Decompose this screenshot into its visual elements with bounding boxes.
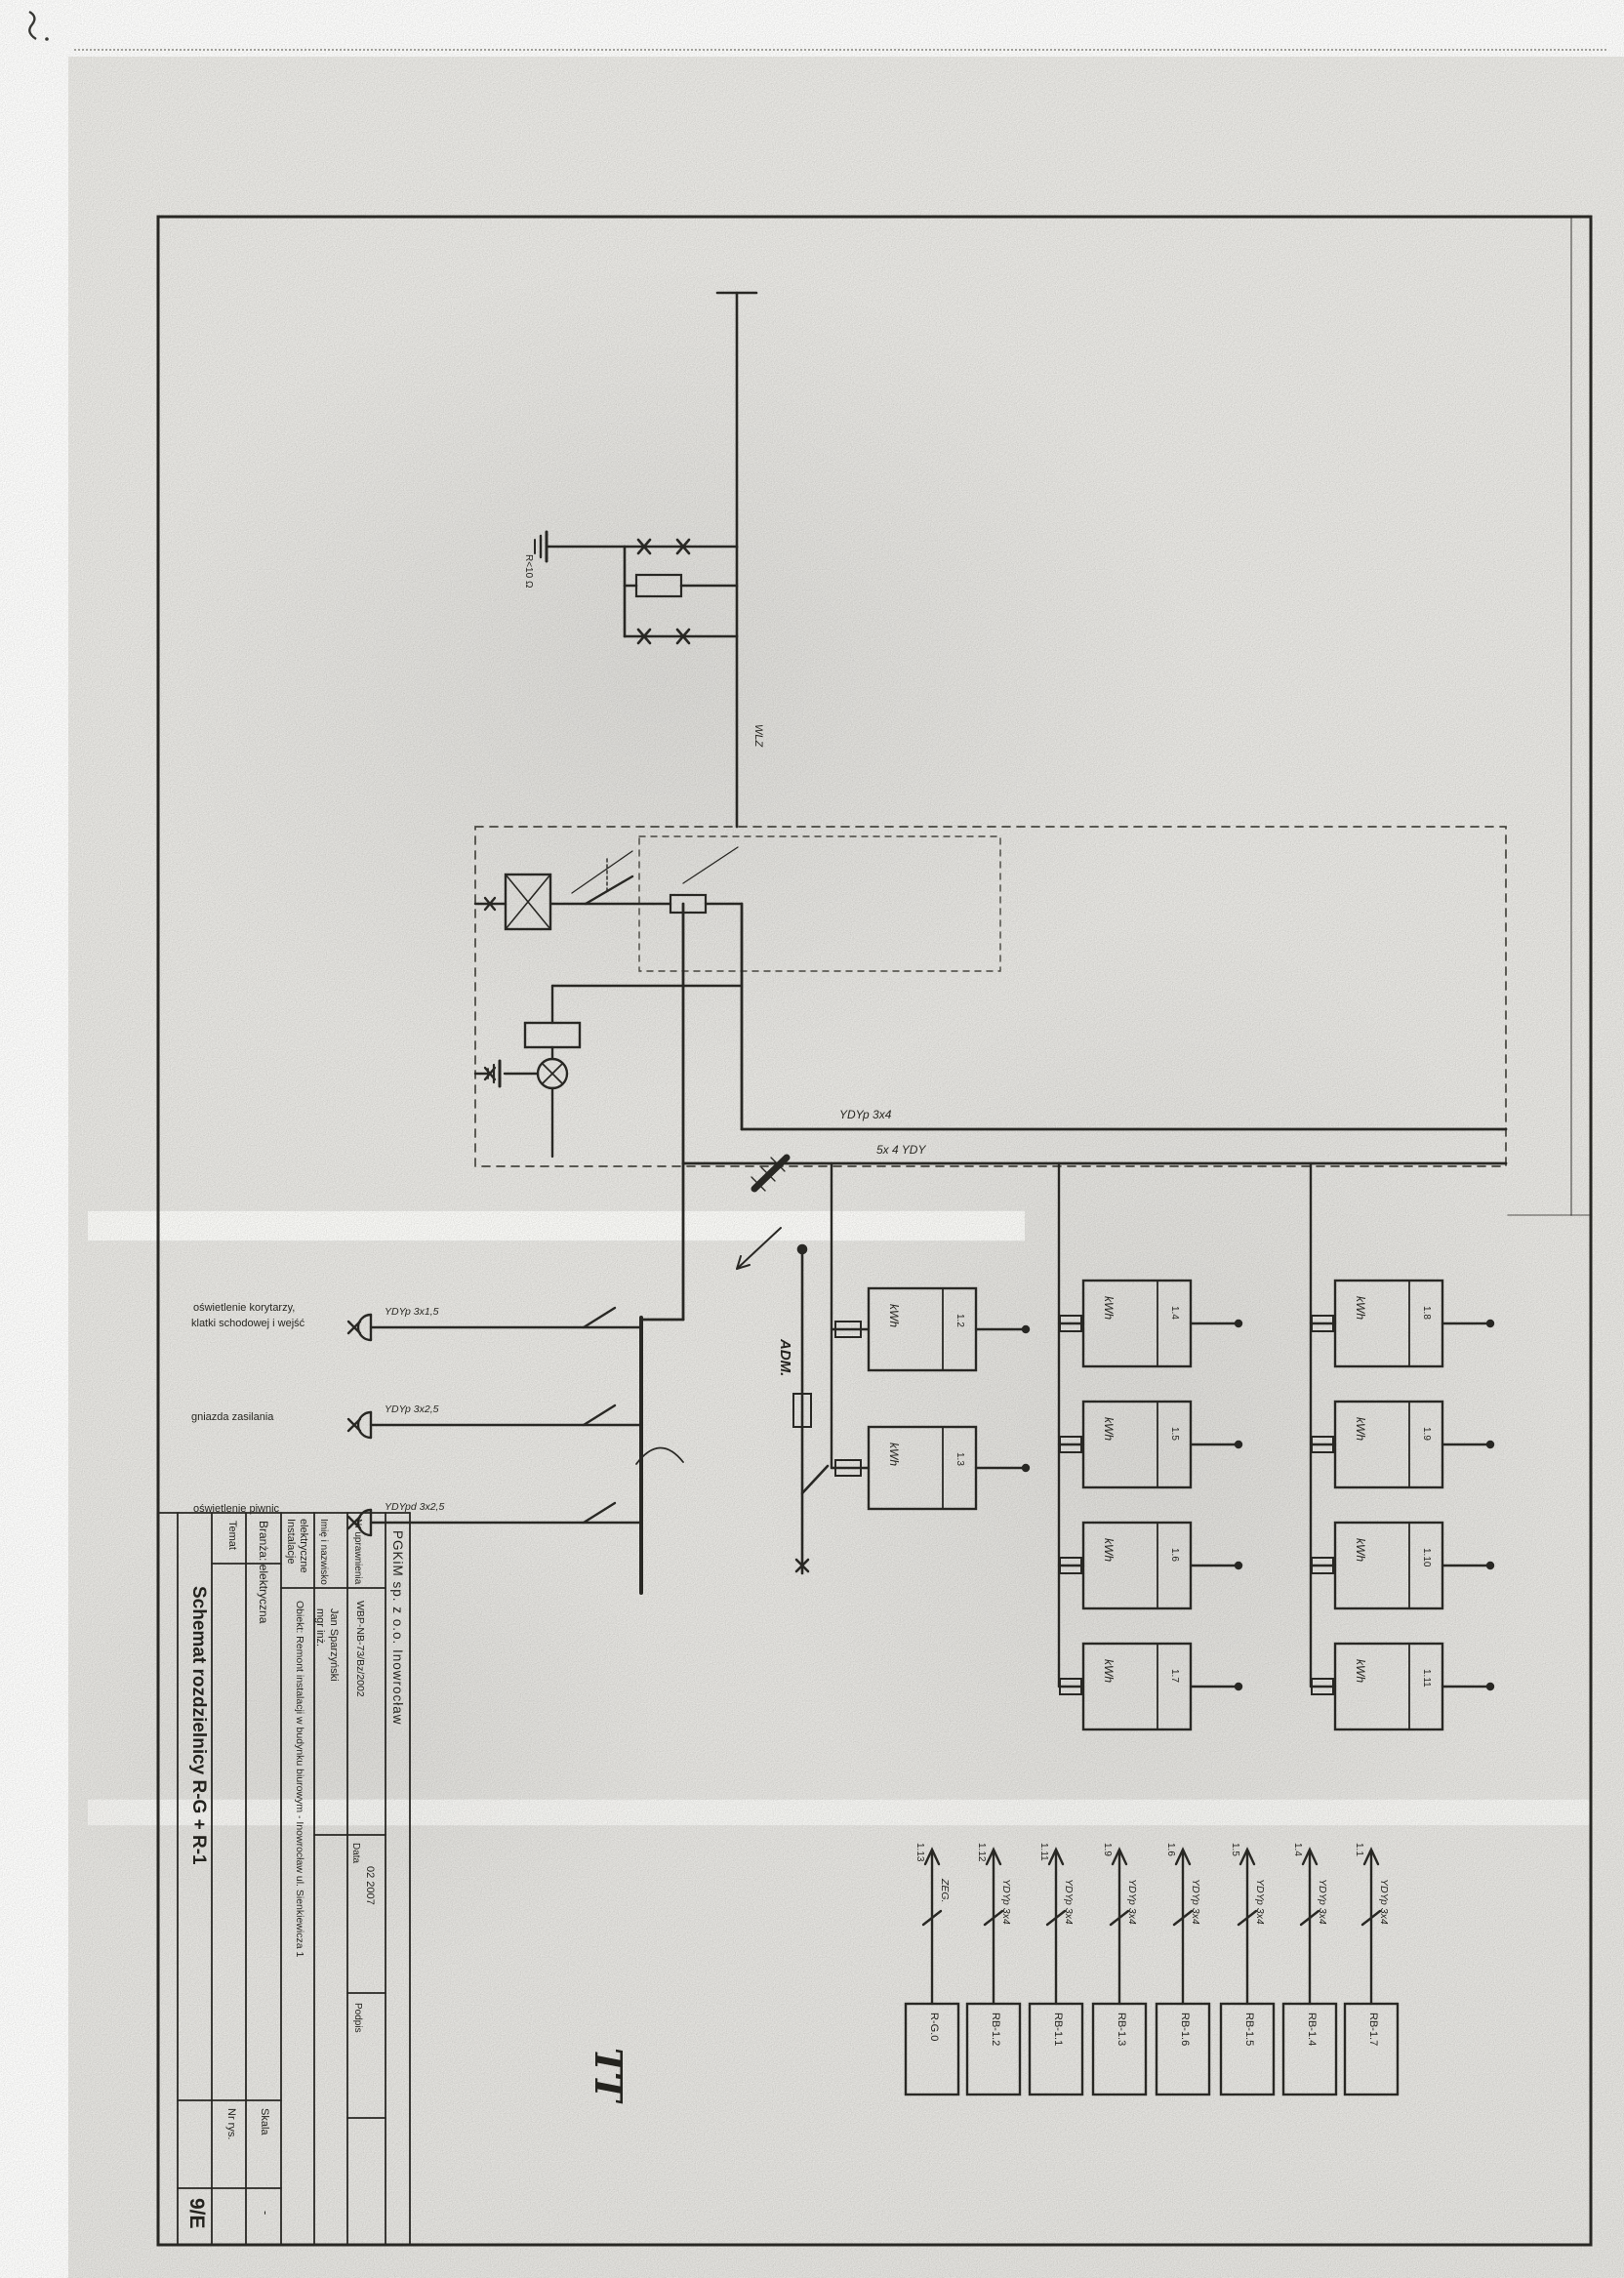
feeder-board-label: RB-1.5 [1243,2013,1254,2046]
meter-circuit-number: 1.9 [1421,1427,1431,1441]
ground-resistance-label: R<10 Ω [523,554,533,588]
feeder-cable: YDYp 3x4 [1255,1879,1266,1925]
feeder-cable: YDYp 3x4 [1064,1879,1075,1925]
circuit-annotation: oświetlenie piwnic [193,1503,279,1516]
meter-circuit-number: 1.3 [954,1452,964,1466]
meter-circuit-number: 1.8 [1421,1306,1431,1320]
meter-circuit-number: 1.10 [1421,1548,1431,1566]
skala-label: Skala [259,2108,269,2136]
supply-circuit [535,293,756,827]
wlz-label: WLZ [752,724,763,747]
main-switch-group [475,847,742,929]
temat-label: Temat [226,1521,237,1550]
circuit-annotation: gniazda zasilania [191,1411,273,1424]
cable-runs [641,904,1506,1320]
feeder-board-label: RB-1.4 [1306,2013,1317,2046]
upr-value: WBP-NB-73/Bz/2002 [355,1601,366,1697]
circuit-annotation: klatki schodowej i wejść [191,1318,304,1330]
data-value: 02 2007 [364,1866,375,1905]
kwh-meter-label: kWh [1355,1296,1366,1320]
imie-label: Imię i nazwisko [318,1519,328,1585]
feeder-number: 1.6 [1165,1843,1175,1856]
kwh-meter-label: kWh [1355,1538,1366,1562]
adm-label: ADM. [778,1339,792,1376]
upr-label: Nr uprawnienia [352,1519,362,1584]
ground-symbol [535,532,625,561]
kwh-meter-label: kWh [1103,1296,1115,1320]
scanned-schematic-page: R<10 Ω WLZ YDYp 3x4 5x 4 YDY oświetlenie… [0,0,1624,2278]
company-name: PGKiM sp. z o.o. Inowrocław [391,1530,405,1726]
nr-rys-label: Nr rys. [225,2108,236,2139]
sheet-border [158,217,1591,2245]
sheet-number: 9/E [186,2198,207,2229]
podpis-label: Podpis [352,2003,362,2033]
instalacje-cell: Instalacje [285,1519,296,1564]
circuit-cable-label: YDYp 3x1,5 [385,1306,438,1318]
designer-name: mgr inż. [314,1608,325,1647]
feeder-number: 1.12 [976,1843,986,1861]
schematic-linework [0,0,1624,2278]
feeder-number: 1.4 [1292,1843,1302,1856]
meter-circuit-number: 1.11 [1421,1669,1431,1688]
lamp-arrester-group [475,986,742,1157]
feeder-number: 1.9 [1102,1843,1112,1856]
meter-feeds [832,1163,1311,1687]
feeder-cable: YDYp 3x4 [1191,1879,1201,1925]
feeder-board-label: RB-1.7 [1367,2013,1378,2046]
circuit-cable-label: YDYp 3x2,5 [385,1403,438,1415]
meter-circuit-number: 1.5 [1169,1427,1179,1441]
kwh-meter-label: kWh [1103,1538,1115,1562]
kwh-meters-col3 [1311,1281,1493,1729]
kwh-meter-label: kWh [1355,1659,1366,1683]
kwh-meter-label: kWh [1103,1417,1115,1441]
feeder-number: 1.11 [1038,1843,1048,1861]
kwh-meter-label: kWh [888,1304,900,1327]
feeder-cable: ZEG. [940,1879,951,1903]
circuit-annotation: oświetlenie korytarzy, [193,1302,295,1315]
feeder-number: 1.5 [1230,1843,1239,1856]
feeder-cable: YDYp 3x4 [1379,1879,1390,1925]
earthing-system-label: TT [589,2048,627,2101]
meter-circuit-number: 1.4 [1169,1306,1179,1320]
kwh-meter-label: kWh [1355,1417,1366,1441]
feeder-board-label: RB-1.2 [990,2013,1000,2046]
meter-circuit-number: 1.6 [1169,1548,1179,1562]
feeder-cable: YDYp 3x4 [1001,1879,1012,1925]
instalacje-cell: elektryczne [298,1519,308,1573]
feeder-cable: YDYp 3x4 [1318,1879,1328,1925]
feeder-cable: YDYp 3x4 [1127,1879,1138,1925]
adm-riser [793,1245,828,1573]
run2-cable-label: 5x 4 YDY [876,1144,925,1158]
feeder-board-label: RB-1.6 [1179,2013,1190,2046]
circuit-cable-label: YDYpd 3x2,5 [385,1501,444,1513]
drawing-title: Schemat rozdzielnicy R-G + R-1 [189,1586,208,1865]
feeder-board-label: R-G.0 [928,2013,939,2041]
kwh-meters-col1 [832,1288,1029,1509]
meter-circuit-number: 1.2 [954,1314,964,1327]
branza-cell: Branża: elektryczna [258,1521,269,1623]
feeder-board-label: RB-1.1 [1052,2013,1063,2046]
obiekt-cell: Obiekt: Remont instalacji w budynku biur… [295,1601,305,1957]
feeder-number: 1.13 [914,1843,924,1861]
kwh-meters-col2 [1059,1281,1241,1729]
designer-name: Jan Sparzyński [328,1608,339,1682]
meter-circuit-number: 1.7 [1169,1669,1179,1683]
data-label: Data [350,1843,360,1863]
kwh-meter-label: kWh [888,1443,900,1466]
feeder-number: 1.1 [1354,1843,1363,1856]
kwh-meter-label: kWh [1103,1659,1115,1683]
run1-cable-label: YDYp 3x4 [839,1109,891,1122]
feeder-board-label: RB-1.3 [1116,2013,1126,2046]
skala-value: - [260,2211,272,2215]
